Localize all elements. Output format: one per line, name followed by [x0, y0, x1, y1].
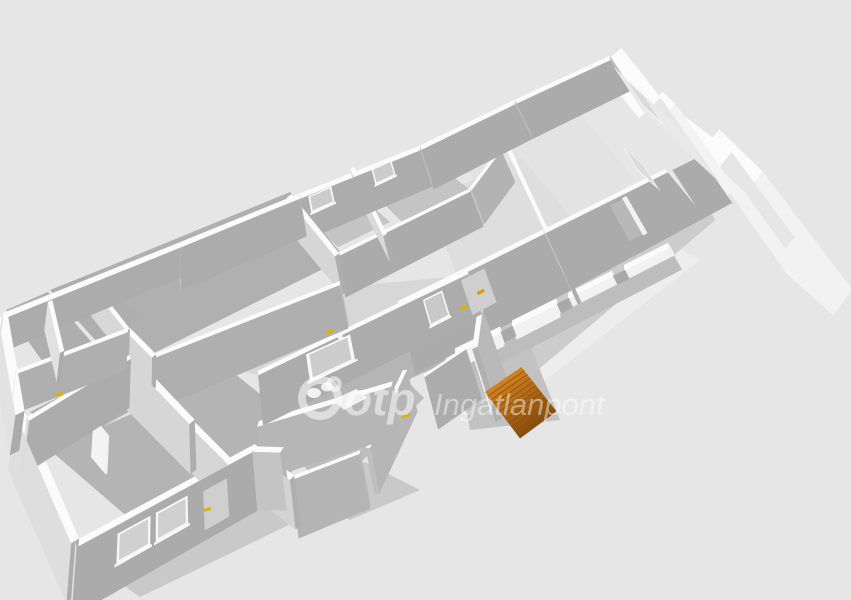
svg-text:Ingatlanpont: Ingatlanpont: [434, 387, 606, 422]
svg-text:otp: otp: [344, 373, 416, 425]
